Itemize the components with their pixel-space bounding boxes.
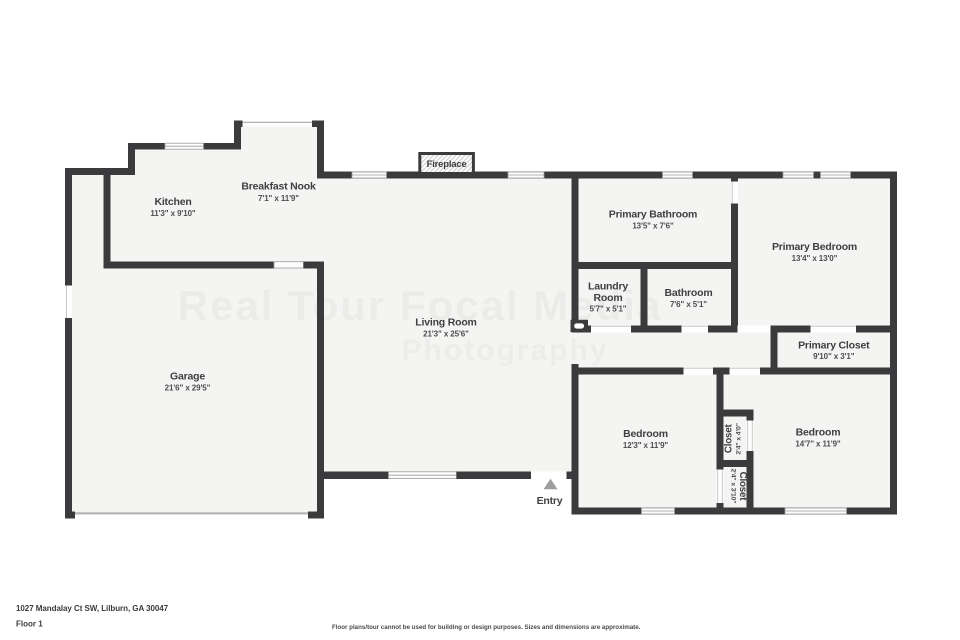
svg-text:11'3" x 9'10": 11'3" x 9'10" [150,209,196,218]
svg-text:Bathroom: Bathroom [665,287,713,299]
svg-text:Kitchen: Kitchen [154,196,191,208]
svg-text:9'10" x 3'1": 9'10" x 3'1" [813,352,855,361]
svg-text:Bedroom: Bedroom [623,428,668,440]
svg-text:14'7" x 11'9": 14'7" x 11'9" [795,440,841,449]
svg-text:1027 Mandalay Ct SW, Lilburn,: 1027 Mandalay Ct SW, Lilburn, GA 30047 [16,604,169,613]
svg-text:21'3" x 25'6": 21'3" x 25'6" [423,330,469,339]
svg-text:Primary Bathroom: Primary Bathroom [609,209,697,221]
svg-text:13'5" x 7'6": 13'5" x 7'6" [632,222,674,231]
svg-text:Living Room: Living Room [415,317,476,329]
svg-text:5'7" x 5'1": 5'7" x 5'1" [590,305,627,314]
svg-text:Floor plans/tour cannot be use: Floor plans/tour cannot be used for buil… [332,624,641,631]
svg-text:2'4" x 4'0": 2'4" x 4'0" [735,423,742,454]
svg-text:Closet: Closet [724,423,735,453]
svg-text:Photography: Photography [402,334,609,367]
svg-text:Entry: Entry [537,495,563,507]
svg-text:Primary Bedroom: Primary Bedroom [772,241,857,253]
svg-text:7'6" x 5'1": 7'6" x 5'1" [670,300,707,309]
svg-text:Closet: Closet [737,472,748,502]
svg-text:Fireplace: Fireplace [427,159,467,170]
svg-text:7'1" x 11'9": 7'1" x 11'9" [258,194,299,203]
svg-text:Garage: Garage [170,371,205,383]
svg-text:13'4" x 13'0": 13'4" x 13'0" [792,254,838,263]
svg-text:Floor 1: Floor 1 [16,620,43,629]
svg-text:Primary Closet: Primary Closet [798,340,870,352]
svg-text:Bedroom: Bedroom [796,427,841,439]
svg-text:Laundry: Laundry [588,281,628,293]
svg-text:21'6" x 29'5": 21'6" x 29'5" [165,384,211,393]
svg-text:12'3" x 11'9": 12'3" x 11'9" [623,441,669,450]
svg-text:Room: Room [594,292,623,304]
svg-text:2'4" x 3'10": 2'4" x 3'10" [730,469,737,504]
svg-text:Breakfast Nook: Breakfast Nook [241,181,316,193]
